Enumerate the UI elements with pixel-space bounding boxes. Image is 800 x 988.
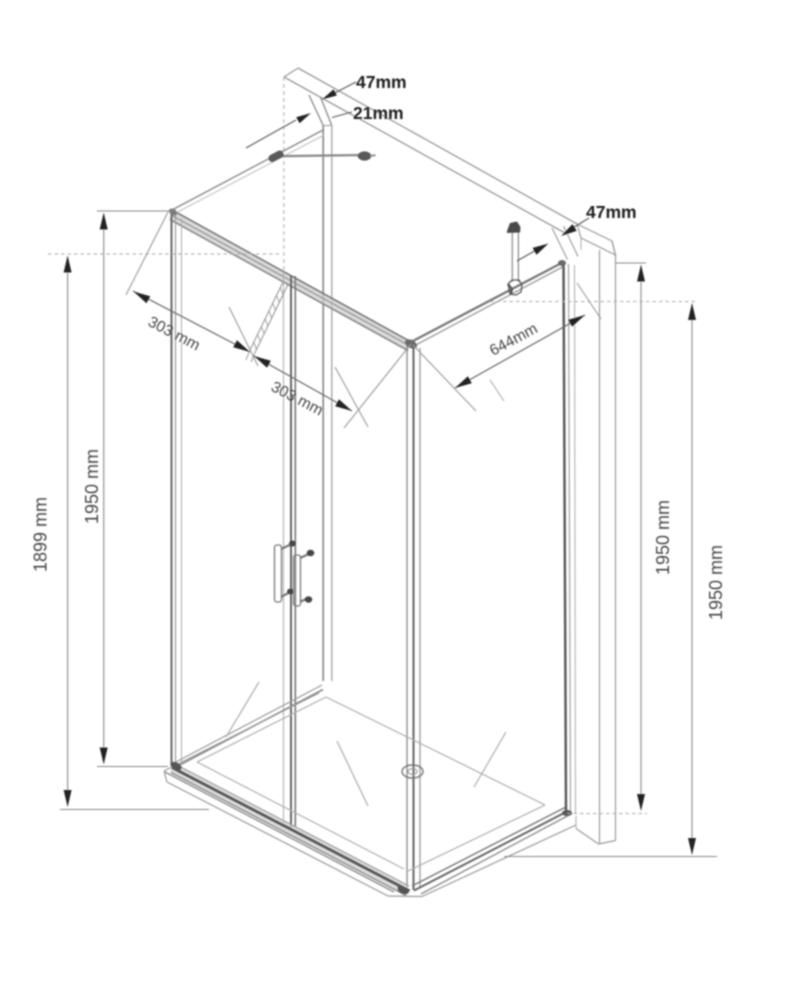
svg-text:1899 mm: 1899 mm (31, 497, 51, 572)
svg-text:47mm: 47mm (356, 72, 407, 92)
svg-text:303 mm: 303 mm (145, 313, 203, 354)
svg-text:47mm: 47mm (586, 202, 637, 222)
svg-text:21mm: 21mm (353, 103, 404, 123)
svg-text:1950 mm: 1950 mm (706, 545, 726, 620)
svg-text:644mm: 644mm (487, 320, 541, 359)
svg-text:1950 mm: 1950 mm (82, 449, 102, 524)
svg-text:1950 mm: 1950 mm (653, 500, 673, 575)
svg-text:303 mm: 303 mm (268, 378, 326, 419)
